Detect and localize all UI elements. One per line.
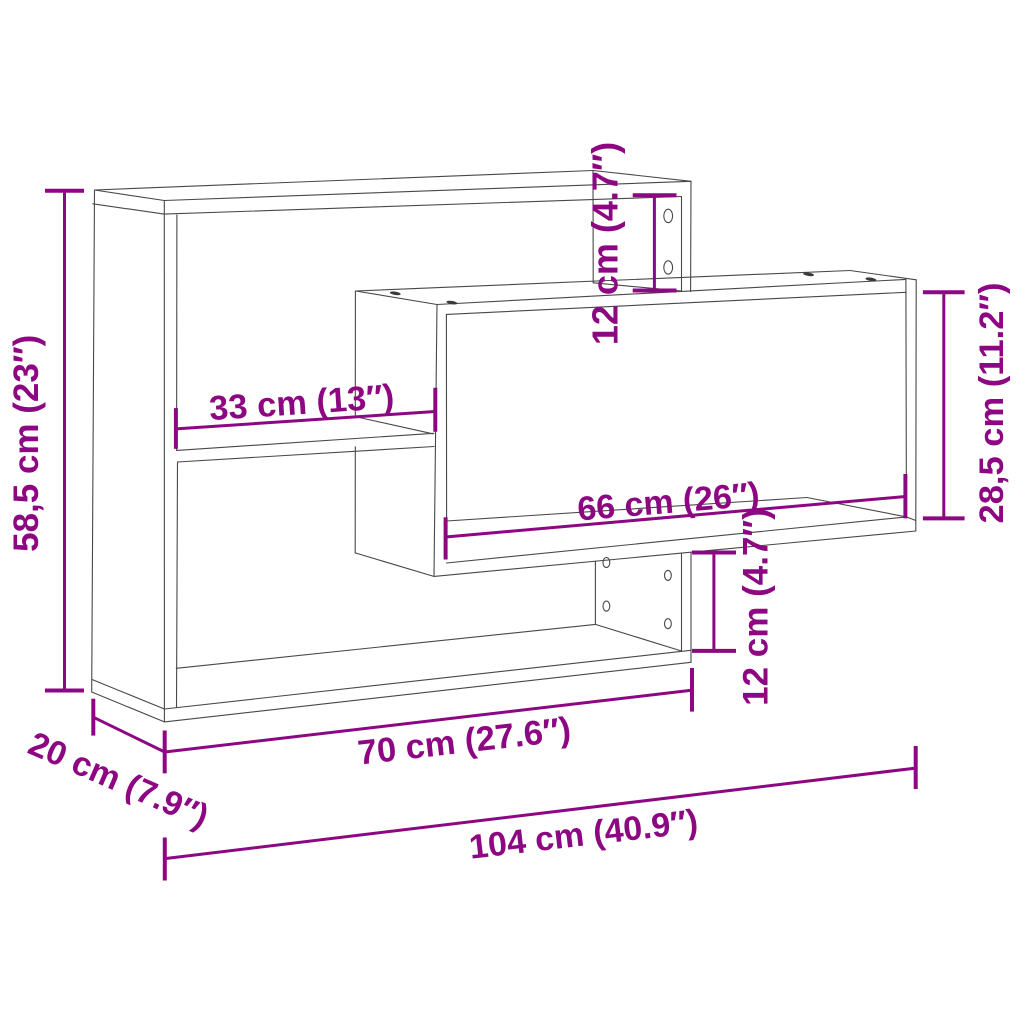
svg-text:28,5 cm (11.2″): 28,5 cm (11.2″) [973,283,1011,524]
svg-text:58,5 cm (23″): 58,5 cm (23″) [7,335,46,552]
svg-text:12 cm (4.7″): 12 cm (4.7″) [585,142,626,345]
svg-text:12 cm (4.7″): 12 cm (4.7″) [737,508,776,706]
